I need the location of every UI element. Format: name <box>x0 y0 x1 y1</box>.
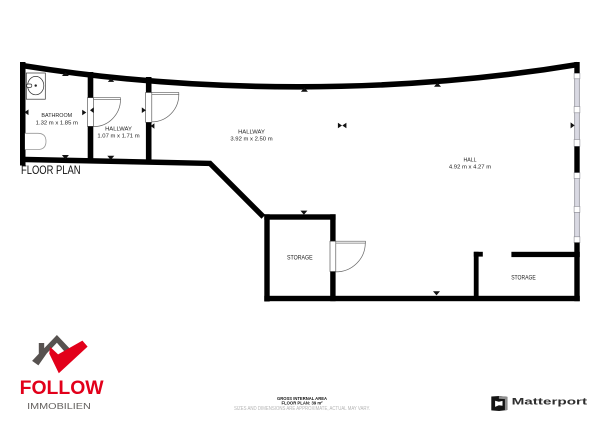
svg-text:FLOOR PLAN: FLOOR PLAN <box>21 163 81 177</box>
svg-text:STORAGE: STORAGE <box>511 274 536 281</box>
svg-text:Matterport: Matterport <box>512 396 589 407</box>
svg-text:HALL: HALL <box>464 158 478 164</box>
svg-text:SIZES AND DIMENSIONS ARE APPRO: SIZES AND DIMENSIONS ARE APPROXIMATE, AC… <box>234 406 370 412</box>
svg-text:1.32 m x 1.85 m: 1.32 m x 1.85 m <box>36 120 78 126</box>
svg-text:4.92 m x 4.27 m: 4.92 m x 4.27 m <box>449 165 491 171</box>
svg-text:BATHROOM: BATHROOM <box>41 113 72 119</box>
svg-text:3.92 m x 2.50 m: 3.92 m x 2.50 m <box>230 137 272 143</box>
svg-text:HALLWAY: HALLWAY <box>105 126 132 132</box>
svg-text:STORAGE: STORAGE <box>287 255 313 262</box>
svg-text:HALLWAY: HALLWAY <box>238 130 265 136</box>
svg-text:IMMOBILIEN: IMMOBILIEN <box>27 402 91 411</box>
svg-text:1.07 m x 1.71 m: 1.07 m x 1.71 m <box>97 133 139 139</box>
svg-text:FOLLOW: FOLLOW <box>20 378 104 399</box>
